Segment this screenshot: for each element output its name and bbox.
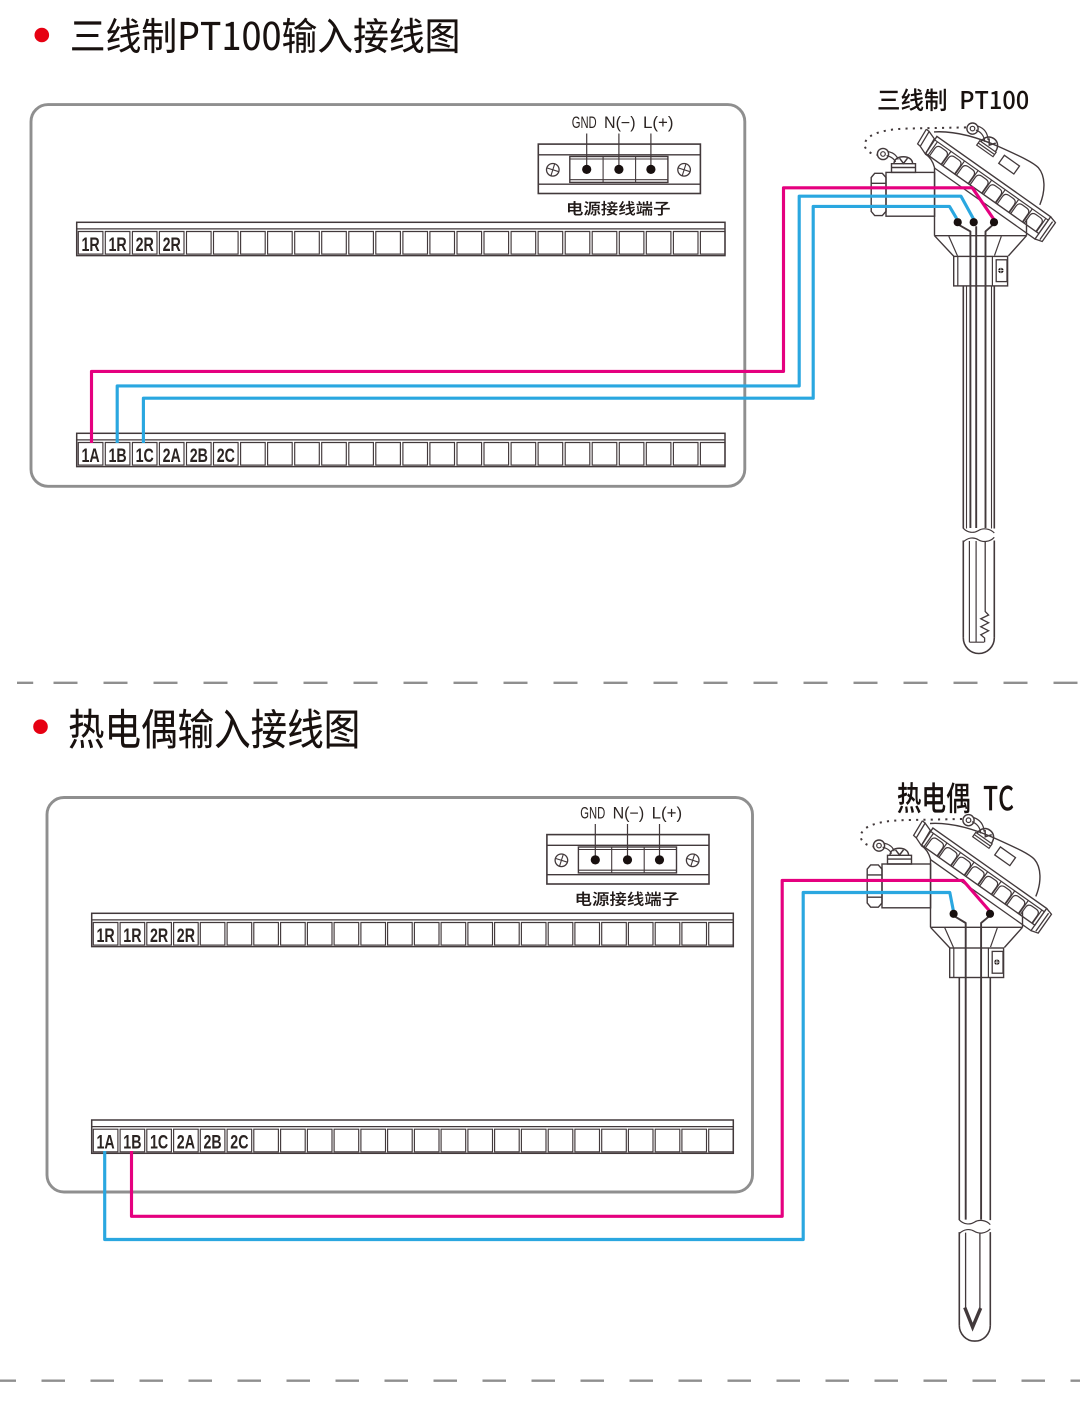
svg-text:1C: 1C bbox=[150, 1132, 168, 1154]
svg-text:1R: 1R bbox=[123, 925, 141, 947]
svg-text:2R: 2R bbox=[177, 925, 195, 947]
svg-text:2C: 2C bbox=[217, 445, 235, 467]
svg-text:2B: 2B bbox=[190, 445, 208, 467]
svg-text:L(+): L(+) bbox=[652, 804, 683, 822]
svg-text:1A: 1A bbox=[82, 445, 100, 467]
svg-text:1C: 1C bbox=[136, 445, 154, 467]
svg-text:2R: 2R bbox=[150, 925, 168, 947]
svg-text:1R: 1R bbox=[82, 234, 100, 256]
svg-text:2R: 2R bbox=[136, 234, 154, 256]
svg-text:N(−): N(−) bbox=[604, 114, 636, 132]
svg-text:GND: GND bbox=[580, 804, 605, 822]
svg-text:1A: 1A bbox=[97, 1132, 115, 1154]
svg-text:1R: 1R bbox=[109, 234, 127, 256]
svg-text:GND: GND bbox=[572, 114, 597, 132]
svg-text:2A: 2A bbox=[163, 445, 181, 467]
svg-text:2A: 2A bbox=[177, 1132, 195, 1154]
svg-text:1B: 1B bbox=[109, 445, 127, 467]
svg-text:2R: 2R bbox=[163, 234, 181, 256]
svg-text:1R: 1R bbox=[97, 925, 115, 947]
svg-text:N(−): N(−) bbox=[613, 804, 645, 822]
svg-text:L(+): L(+) bbox=[643, 114, 674, 132]
svg-text:2C: 2C bbox=[230, 1132, 248, 1154]
svg-text:1B: 1B bbox=[123, 1132, 141, 1154]
svg-text:2B: 2B bbox=[204, 1132, 222, 1154]
